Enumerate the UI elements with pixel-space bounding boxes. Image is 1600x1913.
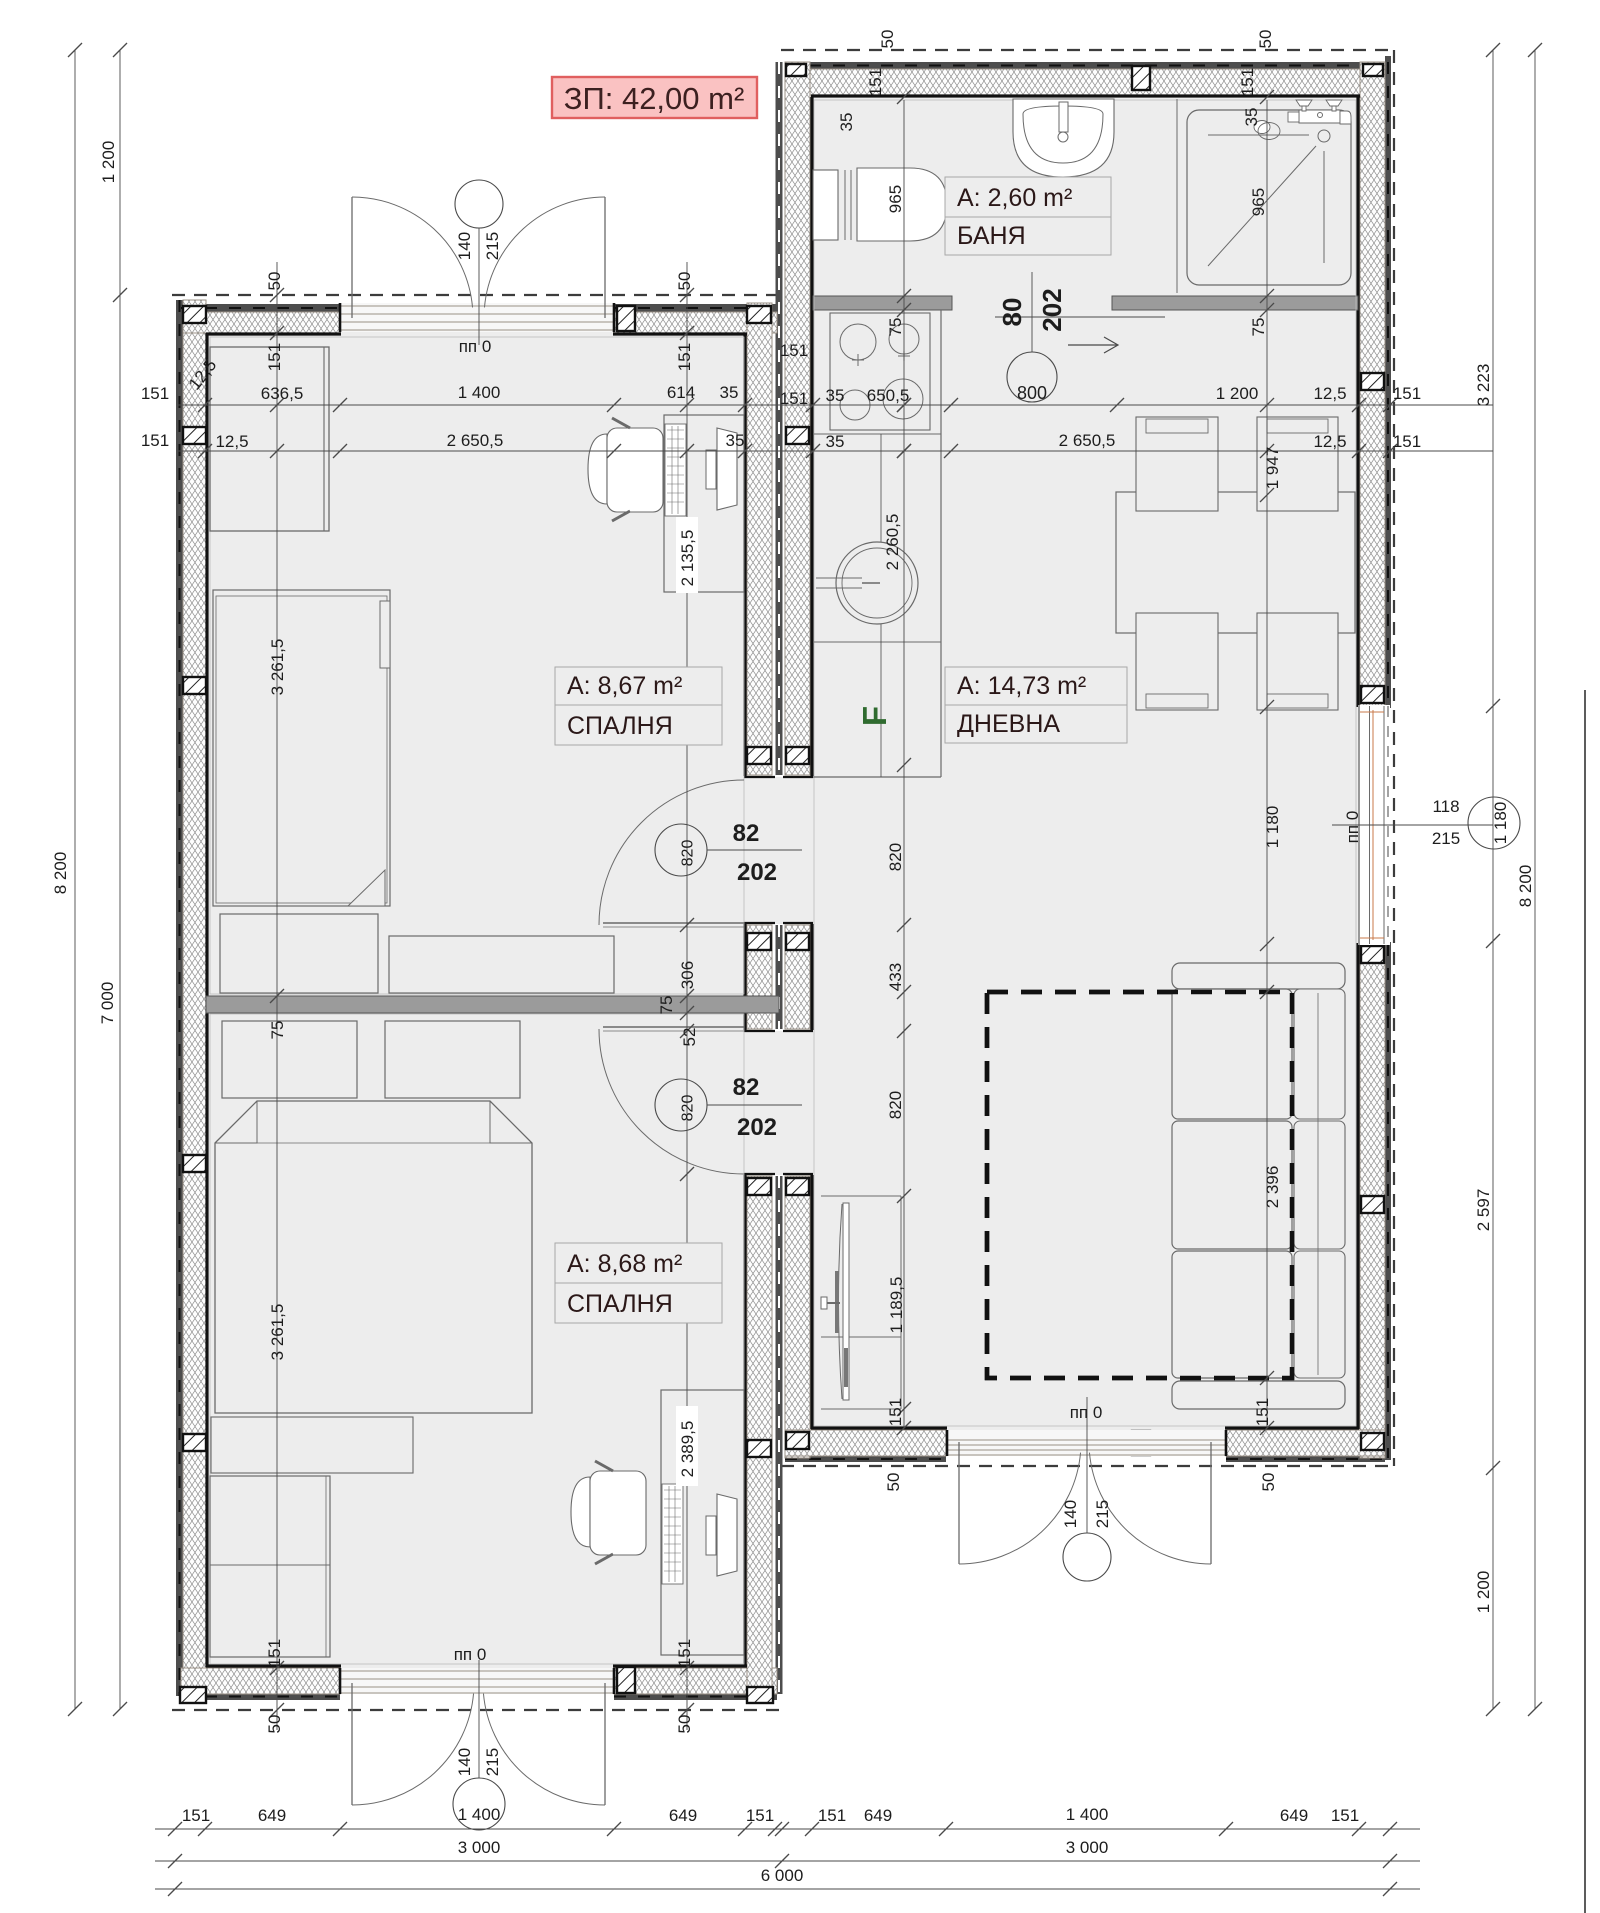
svg-text:А: 14,73 m²: А: 14,73 m²: [957, 672, 1086, 700]
svg-text:1 200: 1 200: [1216, 384, 1259, 403]
svg-text:8 200: 8 200: [1516, 865, 1535, 908]
svg-text:52: 52: [680, 1028, 699, 1047]
svg-text:2 597: 2 597: [1474, 1189, 1493, 1232]
svg-text:151: 151: [1331, 1806, 1359, 1825]
svg-text:А: 2,60 m²: А: 2,60 m²: [957, 184, 1072, 212]
svg-text:3 261,5: 3 261,5: [268, 1304, 287, 1361]
svg-text:215: 215: [1093, 1500, 1112, 1528]
svg-text:151: 151: [1393, 384, 1421, 403]
svg-text:1 180: 1 180: [1491, 802, 1510, 845]
svg-text:800: 800: [1017, 383, 1047, 403]
svg-text:151: 151: [1253, 1398, 1272, 1426]
svg-text:614: 614: [667, 383, 695, 402]
svg-text:151: 151: [780, 389, 808, 408]
svg-text:3 000: 3 000: [458, 1838, 501, 1857]
svg-text:50: 50: [884, 1473, 903, 1492]
svg-text:12,5: 12,5: [1313, 384, 1346, 403]
svg-text:202: 202: [737, 1114, 777, 1141]
svg-text:СПАЛНЯ: СПАЛНЯ: [567, 712, 673, 740]
svg-text:2 650,5: 2 650,5: [447, 431, 504, 450]
svg-text:1 947: 1 947: [1263, 447, 1282, 490]
svg-text:151: 151: [866, 68, 885, 96]
svg-text:F: F: [856, 706, 893, 726]
svg-text:50: 50: [265, 1715, 284, 1734]
svg-text:8 200: 8 200: [51, 852, 70, 895]
svg-text:50: 50: [1259, 1473, 1278, 1492]
svg-text:151: 151: [746, 1806, 774, 1825]
svg-text:215: 215: [1432, 829, 1460, 848]
svg-text:СПАЛНЯ: СПАЛНЯ: [567, 1290, 673, 1318]
svg-text:151: 151: [182, 1806, 210, 1825]
svg-text:82: 82: [733, 1074, 760, 1101]
svg-text:151: 151: [780, 341, 808, 360]
svg-text:50: 50: [265, 272, 284, 291]
svg-text:820: 820: [680, 1095, 697, 1122]
svg-text:118: 118: [1432, 797, 1459, 816]
svg-text:35: 35: [720, 383, 739, 402]
svg-text:820: 820: [886, 1091, 905, 1119]
svg-text:35: 35: [726, 431, 745, 450]
svg-text:БАНЯ: БАНЯ: [957, 222, 1026, 250]
svg-text:151: 151: [141, 384, 169, 403]
svg-text:433: 433: [886, 963, 905, 991]
svg-text:50: 50: [878, 30, 897, 49]
svg-text:1 400: 1 400: [1066, 1805, 1109, 1824]
svg-text:82: 82: [733, 820, 760, 847]
svg-text:151: 151: [1238, 68, 1257, 96]
svg-text:151: 151: [886, 1398, 905, 1426]
svg-text:650,5: 650,5: [867, 386, 910, 405]
svg-text:1 200: 1 200: [99, 141, 118, 184]
svg-text:3 000: 3 000: [1066, 1838, 1109, 1857]
svg-text:215: 215: [483, 232, 502, 260]
svg-text:75: 75: [657, 996, 676, 1015]
svg-text:202: 202: [737, 859, 777, 886]
svg-text:2 650,5: 2 650,5: [1059, 431, 1116, 450]
svg-text:75: 75: [268, 1021, 287, 1040]
svg-text:2 396: 2 396: [1263, 1166, 1282, 1209]
svg-text:649: 649: [258, 1806, 286, 1825]
svg-text:80: 80: [997, 298, 1027, 327]
svg-text:50: 50: [675, 272, 694, 291]
svg-text:75: 75: [1249, 318, 1268, 337]
svg-text:50: 50: [1256, 30, 1275, 49]
svg-text:пп 0: пп 0: [1343, 811, 1362, 844]
svg-text:140: 140: [455, 232, 474, 260]
svg-text:1 400: 1 400: [458, 383, 501, 402]
svg-text:1 189,5: 1 189,5: [887, 1277, 906, 1334]
svg-text:2 389,5: 2 389,5: [678, 1421, 697, 1478]
svg-text:50: 50: [675, 1715, 694, 1734]
svg-text:6 000: 6 000: [761, 1866, 804, 1885]
svg-text:А: 8,68 m²: А: 8,68 m²: [567, 1250, 682, 1278]
svg-text:12,5: 12,5: [1313, 432, 1346, 451]
svg-text:306: 306: [678, 961, 697, 989]
svg-text:35: 35: [837, 113, 856, 132]
svg-text:965: 965: [1249, 188, 1268, 216]
svg-text:35: 35: [826, 432, 845, 451]
svg-text:ЗП: 42,00 m²: ЗП: 42,00 m²: [564, 81, 745, 116]
svg-text:3 223: 3 223: [1474, 364, 1493, 407]
svg-text:151: 151: [675, 1639, 694, 1667]
svg-text:151: 151: [1393, 432, 1421, 451]
svg-text:151: 151: [818, 1806, 846, 1825]
svg-text:151: 151: [265, 1639, 284, 1667]
svg-text:140: 140: [455, 1748, 474, 1776]
svg-text:пп 0: пп 0: [459, 337, 492, 356]
svg-text:202: 202: [1037, 288, 1067, 331]
svg-text:ДНЕВНА: ДНЕВНА: [957, 710, 1060, 738]
svg-text:151: 151: [675, 343, 694, 371]
svg-text:649: 649: [669, 1806, 697, 1825]
svg-text:820: 820: [680, 840, 697, 867]
svg-text:75: 75: [886, 318, 905, 337]
svg-text:пп 0: пп 0: [1070, 1403, 1103, 1422]
svg-text:1 180: 1 180: [1263, 806, 1282, 849]
svg-text:215: 215: [483, 1748, 502, 1776]
svg-text:151: 151: [141, 431, 169, 450]
svg-text:7 000: 7 000: [98, 982, 117, 1025]
svg-text:2 135,5: 2 135,5: [678, 530, 697, 587]
svg-text:3 261,5: 3 261,5: [268, 639, 287, 696]
svg-text:1 400: 1 400: [458, 1805, 501, 1824]
svg-text:пп 0: пп 0: [454, 1645, 487, 1664]
svg-text:151: 151: [265, 343, 284, 371]
svg-text:35: 35: [1242, 108, 1261, 127]
svg-text:649: 649: [864, 1806, 892, 1825]
svg-text:2 260,5: 2 260,5: [883, 514, 902, 571]
svg-text:820: 820: [886, 843, 905, 871]
svg-text:140: 140: [1061, 1500, 1080, 1528]
svg-text:649: 649: [1280, 1806, 1308, 1825]
svg-text:А: 8,67 m²: А: 8,67 m²: [567, 672, 682, 700]
svg-text:965: 965: [886, 185, 905, 213]
svg-text:12,5: 12,5: [215, 432, 248, 451]
svg-text:636,5: 636,5: [261, 384, 304, 403]
svg-text:35: 35: [826, 386, 845, 405]
svg-text:1 200: 1 200: [1474, 1571, 1493, 1614]
